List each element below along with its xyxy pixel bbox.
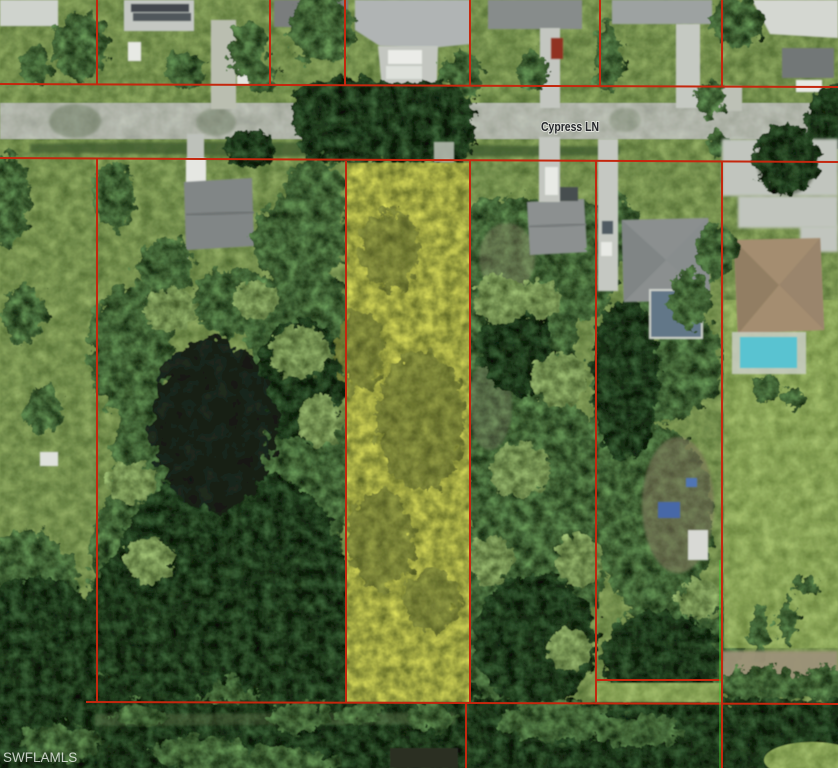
svg-text:Cypress LN: Cypress LN bbox=[541, 120, 599, 134]
svg-text:SWFLAMLS: SWFLAMLS bbox=[3, 750, 77, 765]
